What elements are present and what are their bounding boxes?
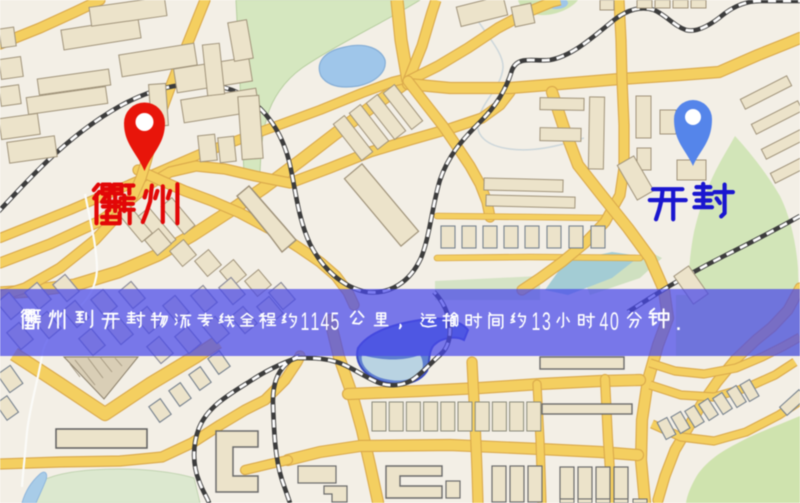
svg-text:3: 3 [542,308,551,336]
svg-text:1: 1 [301,308,310,336]
svg-text:1: 1 [311,308,320,336]
svg-text:0: 0 [610,308,619,336]
svg-text:1: 1 [532,308,541,336]
svg-text:.: . [675,308,682,336]
svg-text:4: 4 [600,308,609,336]
svg-text:4: 4 [321,308,330,336]
svg-text:5: 5 [331,308,340,336]
